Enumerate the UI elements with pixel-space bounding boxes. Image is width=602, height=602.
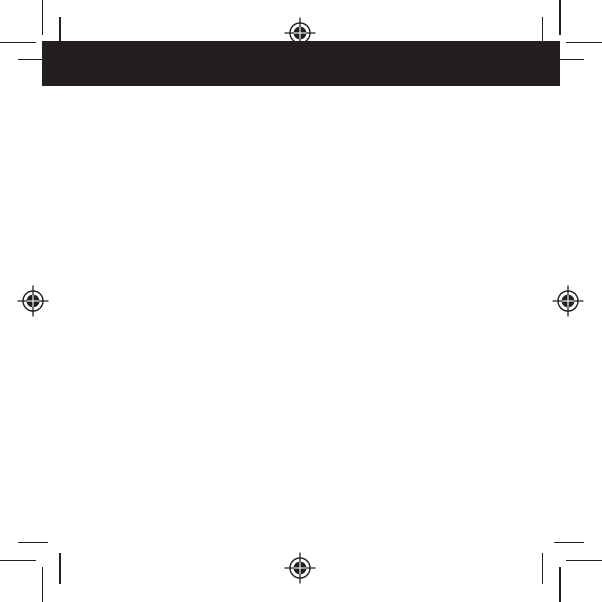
crop-mark (59, 17, 61, 48)
crop-mark (42, 567, 44, 602)
crop-mark (42, 0, 44, 35)
crop-mark (566, 42, 602, 44)
crop-mark (18, 59, 48, 61)
registration-mark-icon-middle-left (16, 284, 50, 318)
crop-mark (0, 42, 36, 44)
crop-mark (554, 59, 584, 61)
crop-mark (554, 542, 584, 544)
registration-mark-icon-middle-right (551, 284, 585, 318)
crop-mark (0, 560, 36, 562)
crop-mark (566, 560, 602, 562)
crop-mark (542, 17, 544, 48)
registration-mark-icon-bottom-center (283, 551, 317, 585)
crop-mark (542, 553, 544, 584)
page (0, 0, 602, 602)
crop-mark (559, 0, 561, 35)
registration-mark-icon-top-center (283, 16, 317, 50)
crop-mark (559, 567, 561, 602)
crop-mark (59, 553, 61, 584)
crop-mark (18, 542, 48, 544)
